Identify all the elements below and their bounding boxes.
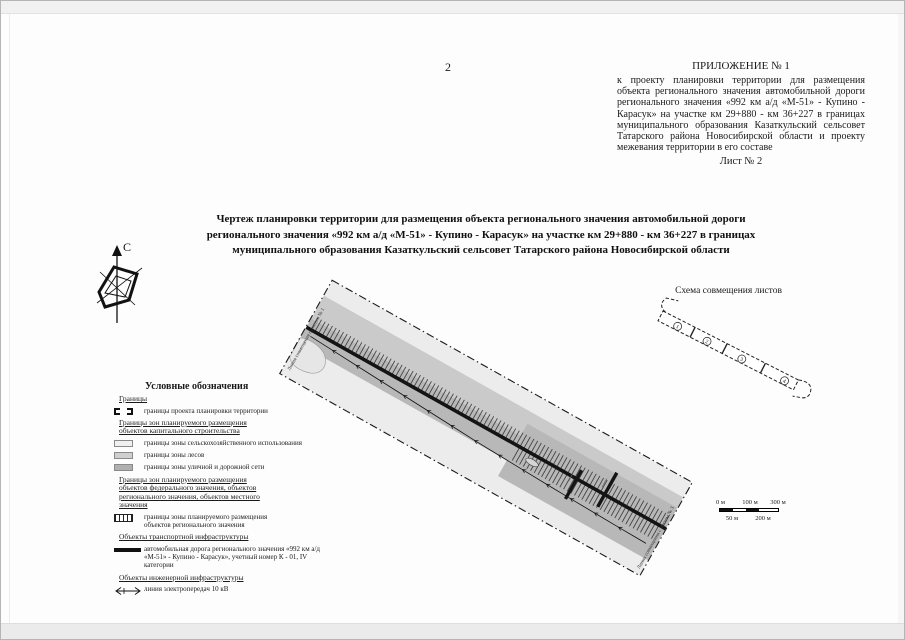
legend: Условные обозначения Границы границы про… <box>114 381 346 600</box>
scale-segment <box>746 509 759 511</box>
legend-item-label: границы проекта планировки территории <box>144 407 268 415</box>
legend-section-engineering: Объекты инженерной инфраструктуры <box>119 574 346 583</box>
legend-item-label: границы зоны планируемого размещения объ… <box>144 513 274 529</box>
legend-item-label: границы зоны сельскохозяйственного испол… <box>144 439 302 447</box>
legend-item: границы проекта планировки территории <box>114 407 346 415</box>
forest-zone-symbol <box>114 452 133 459</box>
legend-item-label: автомобильная дорога регионального значе… <box>144 545 334 570</box>
scale-segment <box>733 509 747 511</box>
legend-item-label: линия электропередач 10 кВ <box>144 585 228 593</box>
compass-arrowhead-icon <box>112 245 122 256</box>
scale-segment <box>720 509 733 511</box>
legend-section-regional-zones: Границы зон планируемого размещения объе… <box>119 476 271 510</box>
road-axis <box>305 326 666 531</box>
legend-item: границы зоны планируемого размещения объ… <box>114 513 346 529</box>
legend-item: границы зоны сельскохозяйственного испол… <box>114 439 346 447</box>
legend-item-label: границы зоны уличной и дорожной сети <box>144 463 264 471</box>
scale-label: 300 м <box>770 499 786 506</box>
sheet-scheme: 1 2 3 4 <box>651 295 820 403</box>
scale-label: 200 м <box>755 515 771 522</box>
scale-label: 50 м <box>726 515 738 522</box>
power-line-symbol <box>114 586 142 596</box>
project-boundary-symbol <box>114 408 133 415</box>
scale-label: 100 м <box>742 499 758 506</box>
document-page: 2 ПРИЛОЖЕНИЕ № 1 к проекту планировки те… <box>0 0 905 640</box>
legend-section-borders: Границы <box>119 395 346 404</box>
legend-item: линия электропередач 10 кВ <box>114 585 346 596</box>
scale-segment <box>759 509 778 511</box>
regional-placement-symbol <box>114 514 133 522</box>
scale-bar: 0 м 100 м 300 м 50 м 200 м <box>707 499 817 525</box>
scheme-hook-start <box>659 295 678 315</box>
road-symbol <box>114 548 141 552</box>
regional-placement-hatch-upper <box>309 316 671 527</box>
legend-item-label: границы зоны лесов <box>144 451 204 459</box>
north-label: С <box>123 240 131 254</box>
north-compass: С <box>97 240 142 323</box>
legend-item: границы зоны лесов <box>114 451 346 459</box>
agriculture-zone-symbol <box>114 440 133 447</box>
road-network-zone-symbol <box>114 464 133 471</box>
legend-heading: Условные обозначения <box>114 381 346 392</box>
sheet-scheme-title: Схема совмещения листов <box>656 286 801 296</box>
scale-bar-segments <box>719 508 779 512</box>
legend-section-capital-zones: Границы зон планируемого размещения объе… <box>119 419 247 436</box>
legend-item: автомобильная дорога регионального значе… <box>114 545 346 570</box>
legend-item: границы зоны уличной и дорожной сети <box>114 463 346 471</box>
scale-label: 0 м <box>716 499 725 506</box>
legend-section-transport: Объекты транспортной инфраструктуры <box>119 533 346 542</box>
